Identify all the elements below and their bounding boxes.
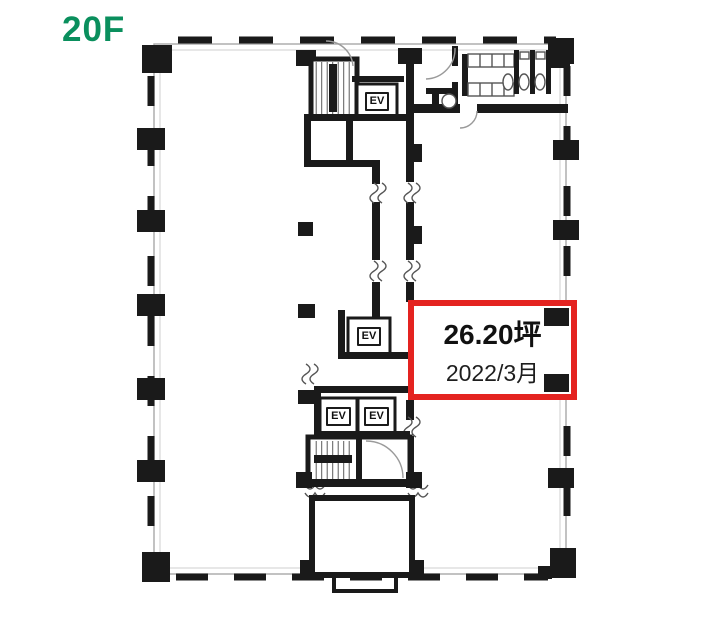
elevator-upper: EV (357, 84, 397, 118)
elevator-mid: EV (348, 318, 390, 354)
unit-area-text: 26.20坪 (443, 313, 541, 353)
elevator-label: EV (357, 327, 382, 346)
column-marker (544, 374, 569, 392)
lower-stairwell (296, 437, 422, 488)
elevator-lower-right: EV (358, 398, 395, 434)
vacant-unit-highlight: 26.20坪 2022/3月 (408, 300, 577, 400)
restroom-block (406, 42, 570, 128)
elevator-lower-left: EV (320, 398, 357, 434)
column-marker (544, 308, 569, 326)
elevator-label: EV (365, 92, 390, 111)
floorplan-page: 20F (0, 0, 721, 627)
elevator-label: EV (364, 407, 389, 426)
bottom-service-room (300, 498, 424, 591)
unit-availability-date: 2022/3月 (446, 354, 539, 388)
elevator-label: EV (326, 407, 351, 426)
